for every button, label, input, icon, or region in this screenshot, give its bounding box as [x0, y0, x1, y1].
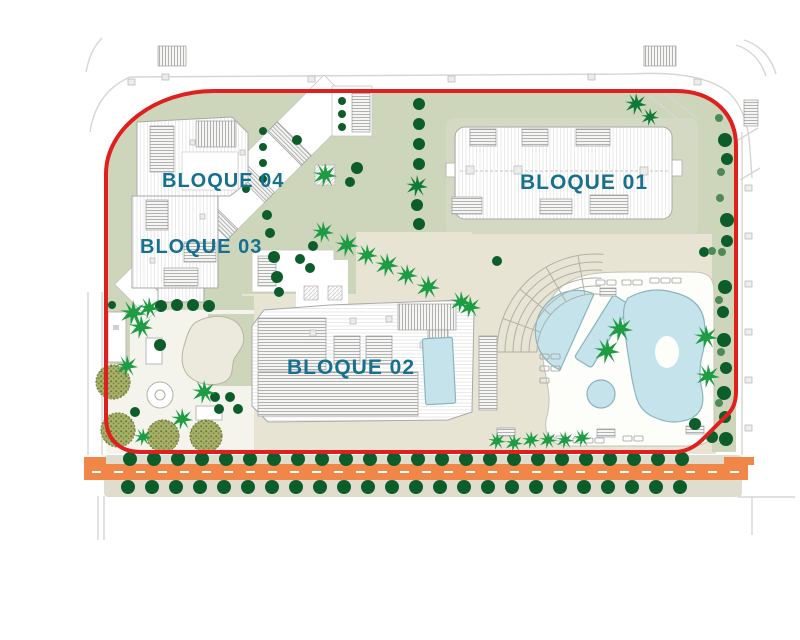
label-bloque-04: BLOQUE 04 — [162, 170, 284, 192]
label-bloque-02: BLOQUE 02 — [287, 356, 415, 379]
fountain — [147, 382, 173, 408]
label-bloque-01: BLOQUE 01 — [520, 171, 648, 194]
bloque02-pool — [422, 337, 455, 404]
site-plan-page: BLOQUE 04 BLOQUE 03 BLOQUE 01 BLOQUE 02 — [0, 0, 800, 640]
site-plan-drawing: BLOQUE 04 BLOQUE 03 BLOQUE 01 BLOQUE 02 — [0, 0, 800, 640]
pool-island — [655, 336, 679, 368]
pergola — [479, 336, 497, 410]
spa-pool — [587, 380, 615, 408]
label-bloque-03: BLOQUE 03 — [140, 236, 262, 258]
